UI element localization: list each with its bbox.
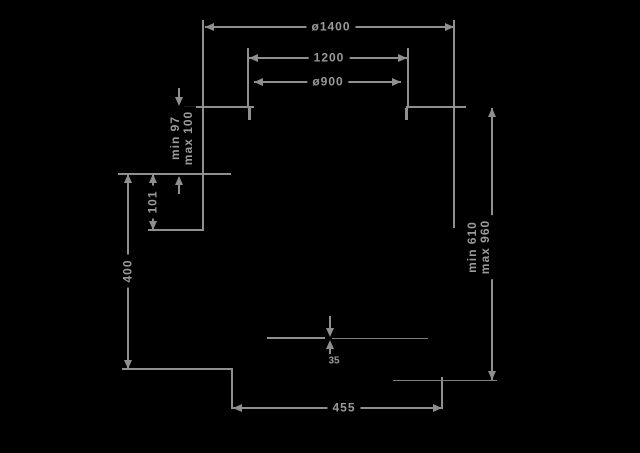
- label-disc-thickness: 35: [326, 355, 341, 368]
- extension-line-outer-right: [453, 20, 455, 228]
- mounting-reference-line: [118, 173, 231, 175]
- label-drop-range: min 610 max 960: [465, 215, 493, 279]
- label-bracket-offset: 101: [146, 185, 161, 218]
- disc-stub-bottom: [329, 349, 331, 354]
- bracket-line: [148, 229, 204, 231]
- arrowhead-down-icon: [175, 97, 183, 106]
- arrowhead-up-icon: [175, 176, 183, 185]
- suspension-hook-right: [405, 108, 408, 120]
- arrowhead-down-icon: [326, 328, 334, 337]
- arrowhead-right-icon: [392, 78, 401, 86]
- label-outer-diameter: ø1400: [306, 20, 355, 35]
- dimension-diagram: ø1400 1200 ø900 min 97 max 100 101 400 3…: [0, 0, 640, 453]
- arrowhead-up-icon: [149, 174, 157, 183]
- disc-edge-left: [267, 337, 325, 339]
- label-base-width: 455: [327, 401, 360, 416]
- ceiling-line-right: [406, 106, 466, 108]
- label-suspension-width: 1200: [309, 51, 350, 66]
- label-ceiling-clearance-max: max 100: [182, 111, 195, 165]
- label-ceiling-clearance: min 97 max 100: [168, 106, 196, 170]
- extension-line-base-right: [441, 377, 443, 409]
- arrowhead-up-icon: [326, 340, 334, 349]
- base-step-line: [231, 368, 233, 409]
- arrowhead-left-icon: [249, 54, 258, 62]
- arrowhead-up-icon: [124, 174, 132, 183]
- arrowhead-left-icon: [205, 23, 214, 31]
- arrowhead-left-icon: [233, 404, 242, 412]
- arrowhead-right-icon: [398, 54, 407, 62]
- label-drop-range-max: max 960: [479, 220, 492, 274]
- clearance-stub-bottom: [178, 185, 180, 194]
- reference-line-right: [393, 380, 497, 381]
- disc-edge-right: [332, 338, 428, 339]
- disc-stub-top: [329, 316, 331, 328]
- suspension-hook-left: [248, 108, 251, 120]
- arrowhead-left-icon: [254, 78, 263, 86]
- label-inner-diameter: ø900: [307, 75, 348, 90]
- label-wall-offset: 400: [121, 254, 136, 287]
- extension-line-outer-left: [202, 20, 204, 230]
- arrowhead-up-icon: [488, 108, 496, 117]
- arrowhead-down-icon: [488, 371, 496, 380]
- floor-line-left: [122, 368, 233, 370]
- arrowhead-right-icon: [445, 23, 454, 31]
